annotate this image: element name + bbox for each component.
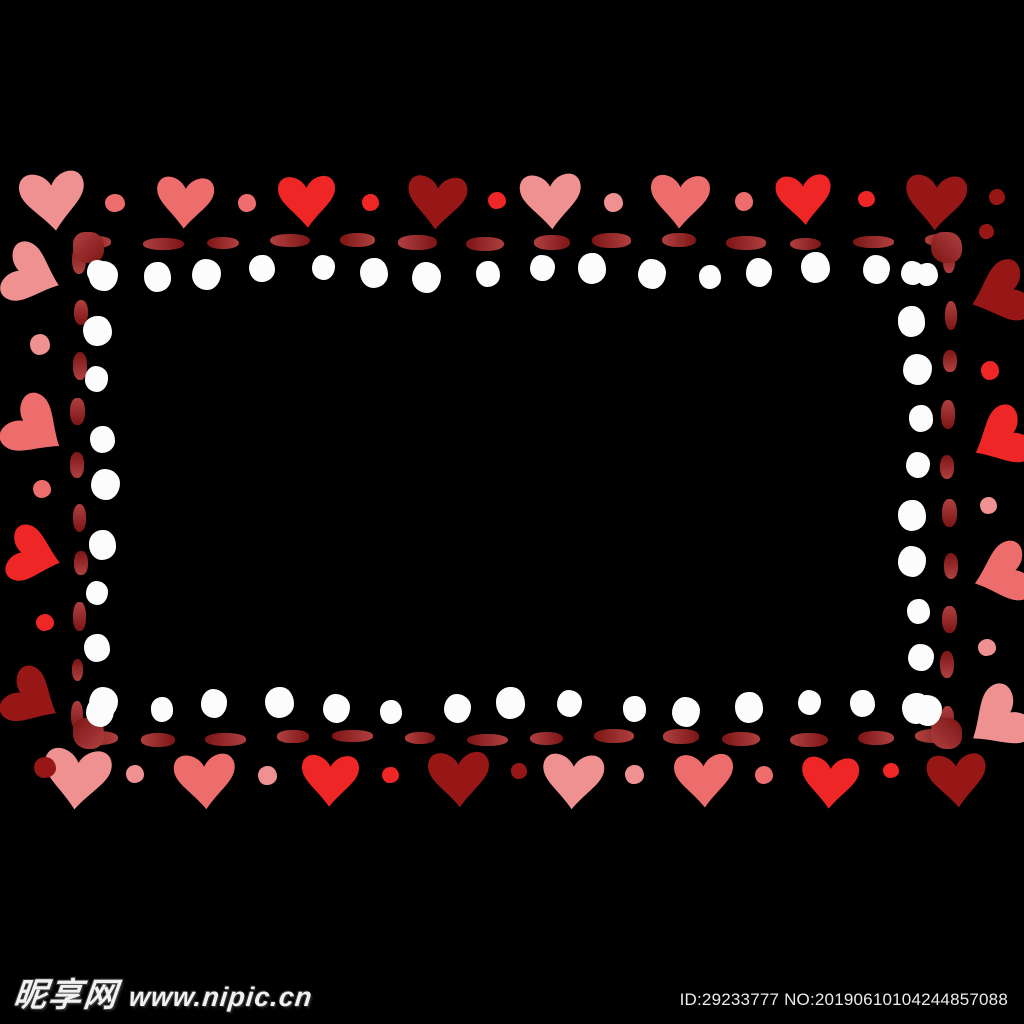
heart-icon: [965, 537, 1024, 613]
white-dot: [909, 405, 934, 432]
border-dash: [941, 400, 955, 429]
white-dot: [901, 261, 923, 285]
border-dash: [73, 504, 87, 532]
heart-icon: [405, 174, 469, 232]
border-dash: [405, 732, 435, 744]
white-dot: [84, 634, 111, 663]
white-dot: [902, 693, 931, 724]
heart-icon: [277, 175, 337, 229]
heart-icon: [961, 400, 1024, 481]
white-dot: [90, 426, 115, 453]
heart-icon: [0, 661, 71, 740]
border-dash: [207, 237, 240, 250]
border-dash: [790, 238, 821, 251]
border-dash: [944, 553, 959, 579]
border-dash: [945, 301, 958, 330]
border-dash: [143, 238, 184, 250]
accent-dot: [488, 192, 506, 209]
white-dot: [530, 255, 555, 282]
heart-icon: [519, 173, 584, 232]
accent-dot: [362, 194, 379, 211]
border-dash: [722, 732, 760, 747]
white-dot: [898, 546, 926, 577]
border-dash: [940, 651, 954, 678]
border-dash: [398, 235, 437, 249]
border-dash: [726, 236, 767, 250]
border-dash: [70, 452, 84, 478]
heart-icon: [904, 174, 969, 233]
heart-icon: [0, 387, 78, 472]
accent-dot: [755, 766, 773, 784]
accent-dot: [511, 763, 527, 779]
border-dash: [70, 398, 84, 425]
heart-icon: [2, 521, 67, 591]
white-dot: [863, 255, 890, 284]
white-dot: [151, 697, 173, 721]
border-dash: [141, 733, 176, 747]
heart-icon: [17, 169, 89, 235]
accent-dot: [604, 193, 623, 212]
accent-dot: [382, 767, 399, 784]
white-dot: [735, 692, 764, 723]
white-dot: [906, 452, 930, 478]
heart-icon: [774, 173, 833, 227]
accent-dot: [858, 191, 875, 207]
white-dot: [801, 252, 830, 283]
border-dash: [858, 731, 894, 745]
border-dash: [72, 659, 84, 681]
heart-icon: [541, 753, 606, 812]
white-dot: [496, 687, 525, 718]
border-dash: [534, 235, 571, 250]
accent-dot: [126, 765, 144, 783]
white-dot: [380, 700, 402, 723]
decorative-heart-frame-image: 昵享网 www.nipic.cn ID:29233777 NO:20190610…: [0, 0, 1024, 1024]
accent-dot: [238, 194, 256, 212]
white-dot: [672, 697, 700, 728]
accent-dot: [735, 192, 753, 211]
heart-icon: [155, 175, 216, 230]
white-dot: [476, 261, 500, 287]
accent-dot: [625, 765, 644, 785]
border-dash: [332, 730, 373, 742]
border-dash: [73, 602, 85, 631]
border-dash: [466, 237, 504, 252]
heart-icon: [0, 237, 70, 314]
white-dot: [638, 259, 666, 289]
white-dot: [908, 644, 934, 672]
white-dot: [850, 690, 875, 717]
border-dash: [663, 729, 699, 743]
border-dash: [594, 729, 634, 743]
accent-dot: [989, 189, 1005, 205]
white-dot: [86, 581, 108, 605]
white-dot: [623, 696, 646, 721]
heart-icon: [40, 747, 113, 814]
white-dot: [201, 689, 227, 717]
border-dash: [74, 551, 87, 575]
white-dot: [557, 690, 582, 717]
white-dot: [144, 262, 171, 291]
white-dot: [89, 687, 118, 718]
accent-dot: [978, 639, 996, 656]
white-dot: [444, 694, 471, 724]
heart-icon: [300, 754, 360, 808]
white-dot: [323, 694, 350, 723]
white-dot: [903, 354, 932, 385]
border-corner-dash: [73, 232, 104, 263]
white-dot: [91, 469, 120, 500]
white-dot: [249, 255, 275, 283]
border-dash: [592, 233, 631, 247]
white-dot: [412, 262, 441, 293]
heart-icon: [649, 174, 711, 230]
border-dash: [940, 455, 954, 479]
white-dot: [578, 253, 607, 284]
accent-dot: [883, 763, 899, 778]
border-dash: [853, 236, 894, 248]
accent-dot: [33, 480, 51, 498]
white-dot: [89, 530, 117, 560]
border-dash: [340, 233, 375, 247]
border-dash: [277, 730, 309, 742]
white-dot: [192, 259, 221, 290]
heart-icon: [427, 751, 491, 809]
heart-icon: [961, 255, 1024, 335]
heart-frame-border: [0, 0, 1024, 1024]
white-dot: [746, 258, 772, 286]
border-dash: [270, 234, 310, 248]
accent-dot: [980, 497, 997, 514]
border-dash: [530, 732, 563, 745]
white-dot: [798, 690, 822, 716]
border-dash: [662, 233, 696, 247]
border-corner-dash: [931, 232, 962, 263]
border-dash: [943, 350, 956, 372]
accent-dot: [981, 361, 999, 380]
accent-dot: [30, 334, 50, 355]
border-dash: [942, 606, 956, 633]
white-dot: [265, 687, 294, 718]
white-dot: [85, 366, 109, 391]
heart-icon: [673, 753, 735, 809]
white-dot: [898, 500, 927, 531]
white-dot: [83, 316, 111, 347]
accent-dot: [258, 766, 277, 786]
heart-icon: [925, 752, 989, 810]
white-dot: [89, 261, 117, 292]
white-dot: [312, 255, 335, 280]
accent-dot: [979, 224, 994, 240]
border-dash: [790, 733, 828, 748]
border-dash: [942, 499, 956, 527]
heart-icon: [800, 755, 861, 810]
accent-dot: [36, 614, 54, 631]
white-dot: [360, 258, 388, 288]
heart-icon: [173, 753, 238, 812]
accent-dot: [105, 194, 125, 212]
white-dot: [699, 265, 721, 289]
border-dash: [205, 733, 245, 746]
border-dash: [467, 734, 508, 747]
white-dot: [907, 599, 930, 624]
white-dot: [898, 306, 926, 336]
